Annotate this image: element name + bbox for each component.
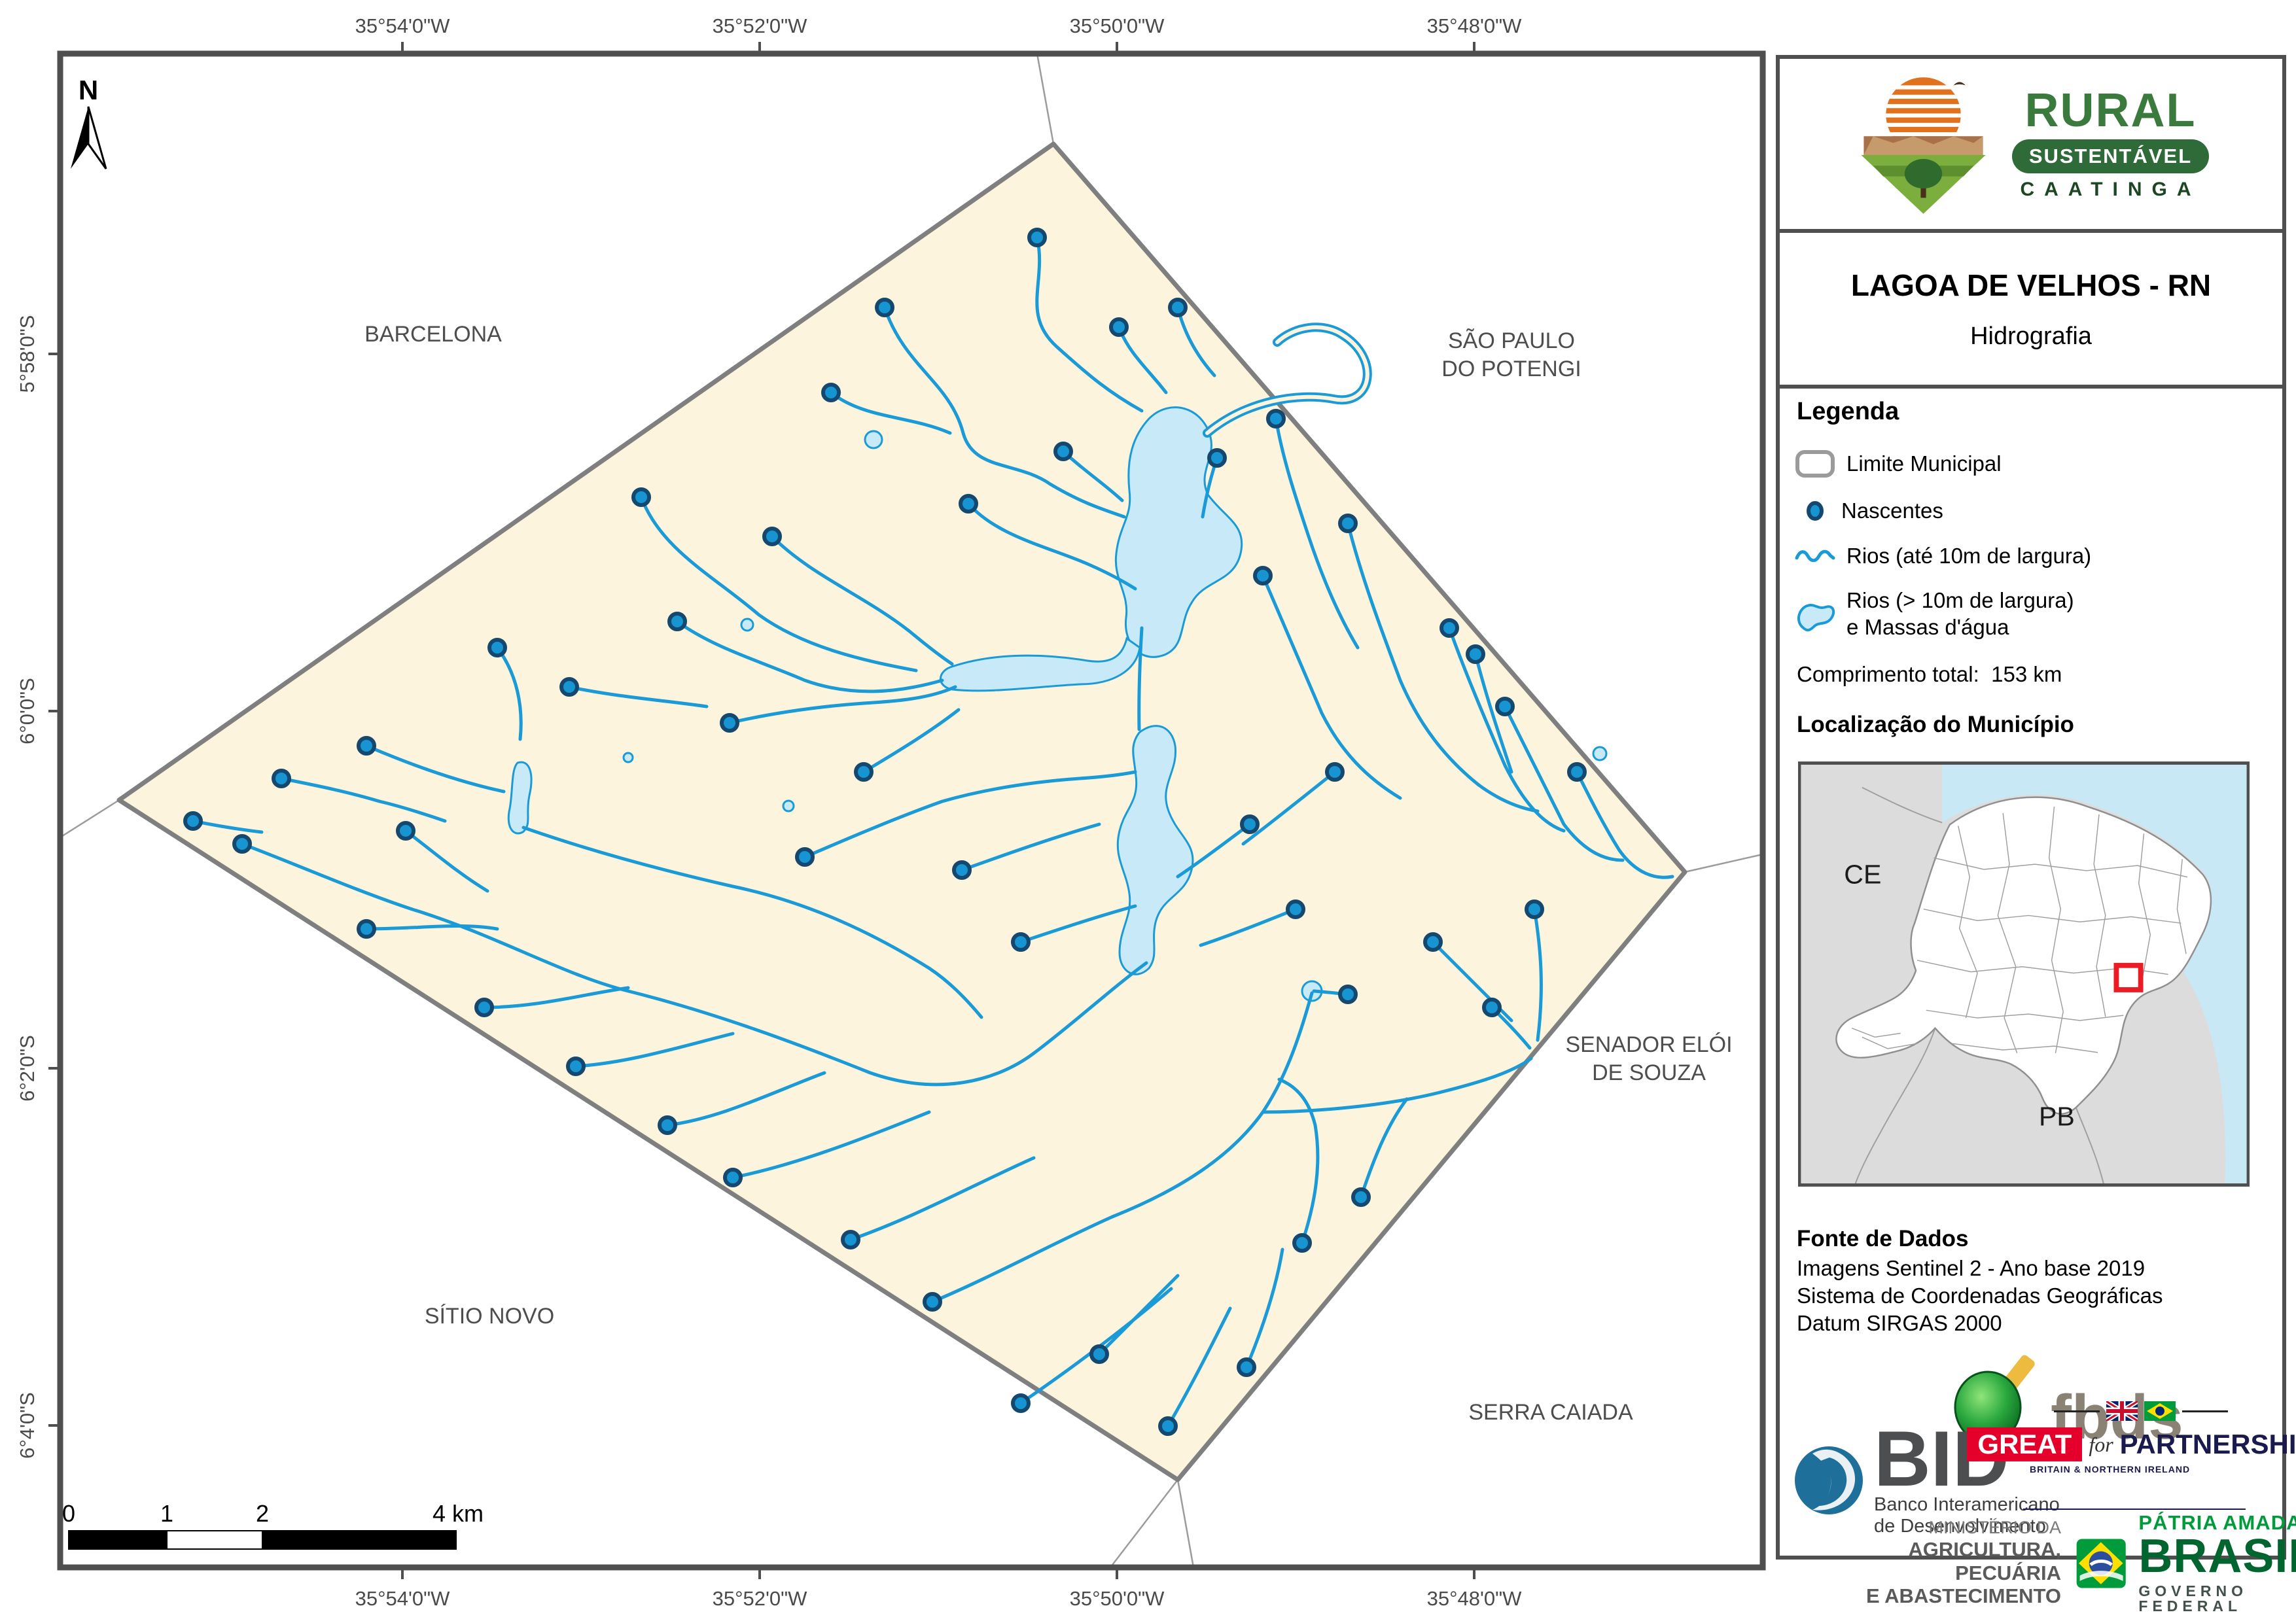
pond — [1593, 747, 1606, 760]
spring-dot — [1160, 1418, 1176, 1434]
spring-dot — [359, 738, 374, 754]
separator-line — [2023, 1509, 2246, 1510]
bid-mark-icon — [1793, 1444, 1865, 1516]
spring-dot — [1029, 230, 1045, 245]
legend-item-rios: Rios (até 10m de largura) — [1794, 542, 2091, 569]
spring-dot — [1340, 986, 1356, 1002]
brazil-gov-flag-icon — [2075, 1533, 2127, 1594]
inset-highlight-square — [2116, 966, 2140, 990]
spring-dot — [1527, 901, 1542, 917]
scalebar-label: 2 — [256, 1500, 269, 1527]
spring-dot — [1091, 1346, 1107, 1362]
spring-dot — [1441, 620, 1457, 636]
spring-dot — [722, 715, 737, 731]
spring-dot — [1013, 934, 1029, 950]
spring-dot — [797, 849, 813, 865]
spring-dot — [633, 489, 649, 505]
longitude-tick-label: 35°48'0"W — [1427, 14, 1523, 37]
spring-dot — [274, 771, 289, 786]
inset-state-label: PB — [2039, 1101, 2075, 1131]
spring-dot — [1055, 444, 1071, 459]
legend-item-nascentes: Nascentes — [1799, 497, 1943, 525]
spring-dot — [1288, 901, 1303, 917]
pond — [865, 431, 882, 448]
ministry-line: E ABASTECIMENTO — [1839, 1584, 2061, 1608]
river-line-icon — [1794, 545, 1837, 567]
info-box: Legenda Limite Municipal Nascentes Rios … — [1776, 385, 2286, 1560]
locator-header: Localização do Município — [1797, 712, 2074, 738]
spring-dot — [1242, 816, 1258, 832]
spring-dot — [1468, 646, 1483, 662]
neighbor-municipality-label: SÍTIO NOVO — [425, 1304, 554, 1329]
legend-item-limite: Limite Municipal — [1794, 447, 2002, 480]
spring-dot — [1340, 515, 1356, 531]
legend-item-massas: Rios (> 10m de largura) e Massas d'água — [1794, 586, 2074, 641]
longitude-tick-label: 35°54'0"W — [355, 1587, 451, 1610]
spring-dot — [561, 679, 577, 695]
britain-caption: BRITAIN & NORTHERN IRELAND — [2030, 1464, 2272, 1475]
latitude-tick-label: 5°58'0"S — [16, 315, 39, 393]
neighbor-municipality-label: DE SOUZA — [1592, 1060, 1706, 1085]
spring-dot — [1425, 934, 1441, 950]
spring-dot — [1013, 1395, 1029, 1411]
spring-dot — [725, 1170, 741, 1185]
program-logo-box: RURAL SUSTENTÁVEL CAATINGA — [1776, 55, 2286, 233]
governo-federal-text: GOVERNO FEDERAL — [2138, 1584, 2296, 1614]
spring-dot — [1255, 568, 1271, 584]
ministry-line: AGRICULTURA, PECUÁRIA — [1839, 1538, 2061, 1584]
longitude-tick-label: 35°52'0"W — [713, 14, 808, 37]
legend-label: Rios (até 10m de largura) — [1846, 542, 2091, 569]
legend-header: Legenda — [1797, 398, 1899, 426]
water-body-icon — [1794, 586, 1837, 641]
longitude-tick-label: 35°54'0"W — [355, 14, 451, 37]
rural-sustentavel-logo-icon — [1853, 72, 1994, 216]
latitude-tick-label: 6°0'0"S — [16, 678, 39, 744]
patria-amada-brasil-logo: PÁTRIA AMADA BRASIL GOVERNO FEDERAL — [2075, 1512, 2296, 1614]
main-map: BARCELONASÃO PAULODO POTENGISENADOR ELÓI… — [0, 0, 1778, 1623]
data-source-line: Datum SIRGAS 2000 — [1797, 1311, 2002, 1336]
great-for: for — [2089, 1433, 2113, 1457]
spring-dot — [1239, 1359, 1254, 1375]
scalebar-label: 0 — [62, 1500, 75, 1527]
neighbor-municipality-label: SENADOR ELÓI — [1565, 1032, 1732, 1057]
bird-icon — [1953, 82, 1965, 85]
neighbor-municipality-label: SERRA CAIADA — [1468, 1400, 1633, 1425]
brasil-text: BRASIL — [2138, 1533, 2296, 1580]
spring-dot — [398, 823, 414, 839]
pond — [741, 619, 753, 631]
spring-dot — [489, 640, 505, 655]
caatinga-wordmark: CAATINGA — [2020, 179, 2200, 201]
pond — [783, 801, 794, 811]
longitude-tick-label: 35°52'0"W — [713, 1587, 808, 1610]
spring-dot — [1497, 699, 1513, 714]
latitude-tick-label: 6°4'0"S — [16, 1392, 39, 1459]
spring-dot — [961, 496, 976, 512]
locator-inset-map: CEPB — [1798, 761, 2250, 1187]
brazil-flag-icon — [2144, 1401, 2176, 1421]
page-title: LAGOA DE VELHOS - RN — [1851, 268, 2211, 303]
spring-dot — [1294, 1235, 1310, 1251]
flag-line — [2054, 1410, 2100, 1412]
uk-flag-icon — [2106, 1401, 2138, 1421]
spring-dot — [823, 385, 839, 400]
spring-dot — [568, 1058, 584, 1074]
legend-label: Nascentes — [1841, 497, 1943, 524]
spring-dot — [1327, 764, 1343, 780]
data-source-line: Sistema de Coordenadas Geográficas — [1797, 1283, 2163, 1308]
page-subtitle: Hidrografia — [1970, 323, 2092, 351]
longitude-tick-label: 35°50'0"W — [1070, 14, 1165, 37]
spring-dot — [1484, 1000, 1500, 1015]
title-box: LAGOA DE VELHOS - RN Hidrografia — [1776, 229, 2286, 389]
rural-wordmark: RURAL — [2025, 87, 2197, 134]
spring-dot — [476, 1000, 492, 1015]
longitude-tick-label: 35°48'0"W — [1427, 1587, 1523, 1610]
scalebar-segment — [69, 1531, 167, 1549]
spring-dot — [877, 300, 892, 315]
sustentavel-wordmark: SUSTENTÁVEL — [2012, 139, 2209, 173]
great-logo: GREAT for PARTNERSHIP BRITAIN & NORTHERN… — [2010, 1401, 2272, 1475]
neighbor-municipality-label: SÃO PAULO — [1448, 328, 1575, 353]
spring-dot — [1170, 300, 1186, 315]
ministry-block: MINISTÉRIO DA AGRICULTURA, PECUÁRIA E AB… — [1839, 1518, 2061, 1608]
spring-dot — [1353, 1189, 1369, 1205]
pond — [624, 753, 633, 762]
longitude-tick-label: 35°50'0"W — [1070, 1587, 1165, 1610]
sidebar: RURAL SUSTENTÁVEL CAATINGA LAGOA DE VELH… — [1776, 55, 2286, 1560]
legend-label: Limite Municipal — [1846, 450, 2002, 477]
spring-dot — [1209, 450, 1225, 466]
spring-dot — [843, 1232, 858, 1248]
spring-dot — [669, 614, 685, 629]
total-length-value: 153 km — [1991, 662, 2062, 686]
scalebar-label: 1 — [160, 1500, 173, 1527]
spring-dot — [185, 813, 201, 829]
north-label: N — [79, 75, 98, 105]
legend-label: Rios (> 10m de largura) e Massas d'água — [1846, 587, 2074, 641]
partnership-wordmark: PARTNERSHIP — [2120, 1429, 2296, 1460]
spring-dot — [660, 1117, 675, 1133]
spring-dot — [1111, 319, 1127, 335]
scalebar-segment — [167, 1531, 262, 1549]
spring-dot-icon — [1799, 497, 1832, 525]
neighbor-municipality-label: BARCELONA — [364, 322, 502, 347]
total-length: Comprimento total: 153 km — [1797, 662, 2062, 687]
data-source-header: Fonte de Dados — [1797, 1226, 1969, 1252]
scalebar-segment — [262, 1531, 456, 1549]
spring-dot — [856, 764, 872, 780]
bid-subtitle: Banco Interamericano — [1874, 1494, 2060, 1516]
municipal-limit-icon — [1794, 447, 1837, 480]
ministry-line: MINISTÉRIO DA — [1839, 1518, 2061, 1538]
map-sheet: { "map": { "frame": {"x": 92, "y": 82, "… — [0, 0, 2296, 1623]
spring-dot — [925, 1294, 940, 1310]
flag-line — [2182, 1410, 2228, 1412]
data-source-line: Imagens Sentinel 2 - Ano base 2019 — [1797, 1256, 2145, 1281]
spring-dot — [234, 836, 250, 852]
spring-dot — [359, 921, 374, 937]
spring-dot — [1268, 411, 1284, 427]
spring-dot — [954, 862, 970, 878]
scalebar-label: 4 km — [433, 1500, 484, 1527]
latitude-tick-label: 6°2'0"S — [16, 1035, 39, 1102]
spring-dot — [1569, 764, 1585, 780]
spring-dot — [764, 529, 780, 544]
neighbor-municipality-label: DO POTENGI — [1441, 357, 1581, 381]
inset-state-label: CE — [1844, 860, 1881, 890]
great-wordmark: GREAT — [1967, 1427, 2082, 1461]
